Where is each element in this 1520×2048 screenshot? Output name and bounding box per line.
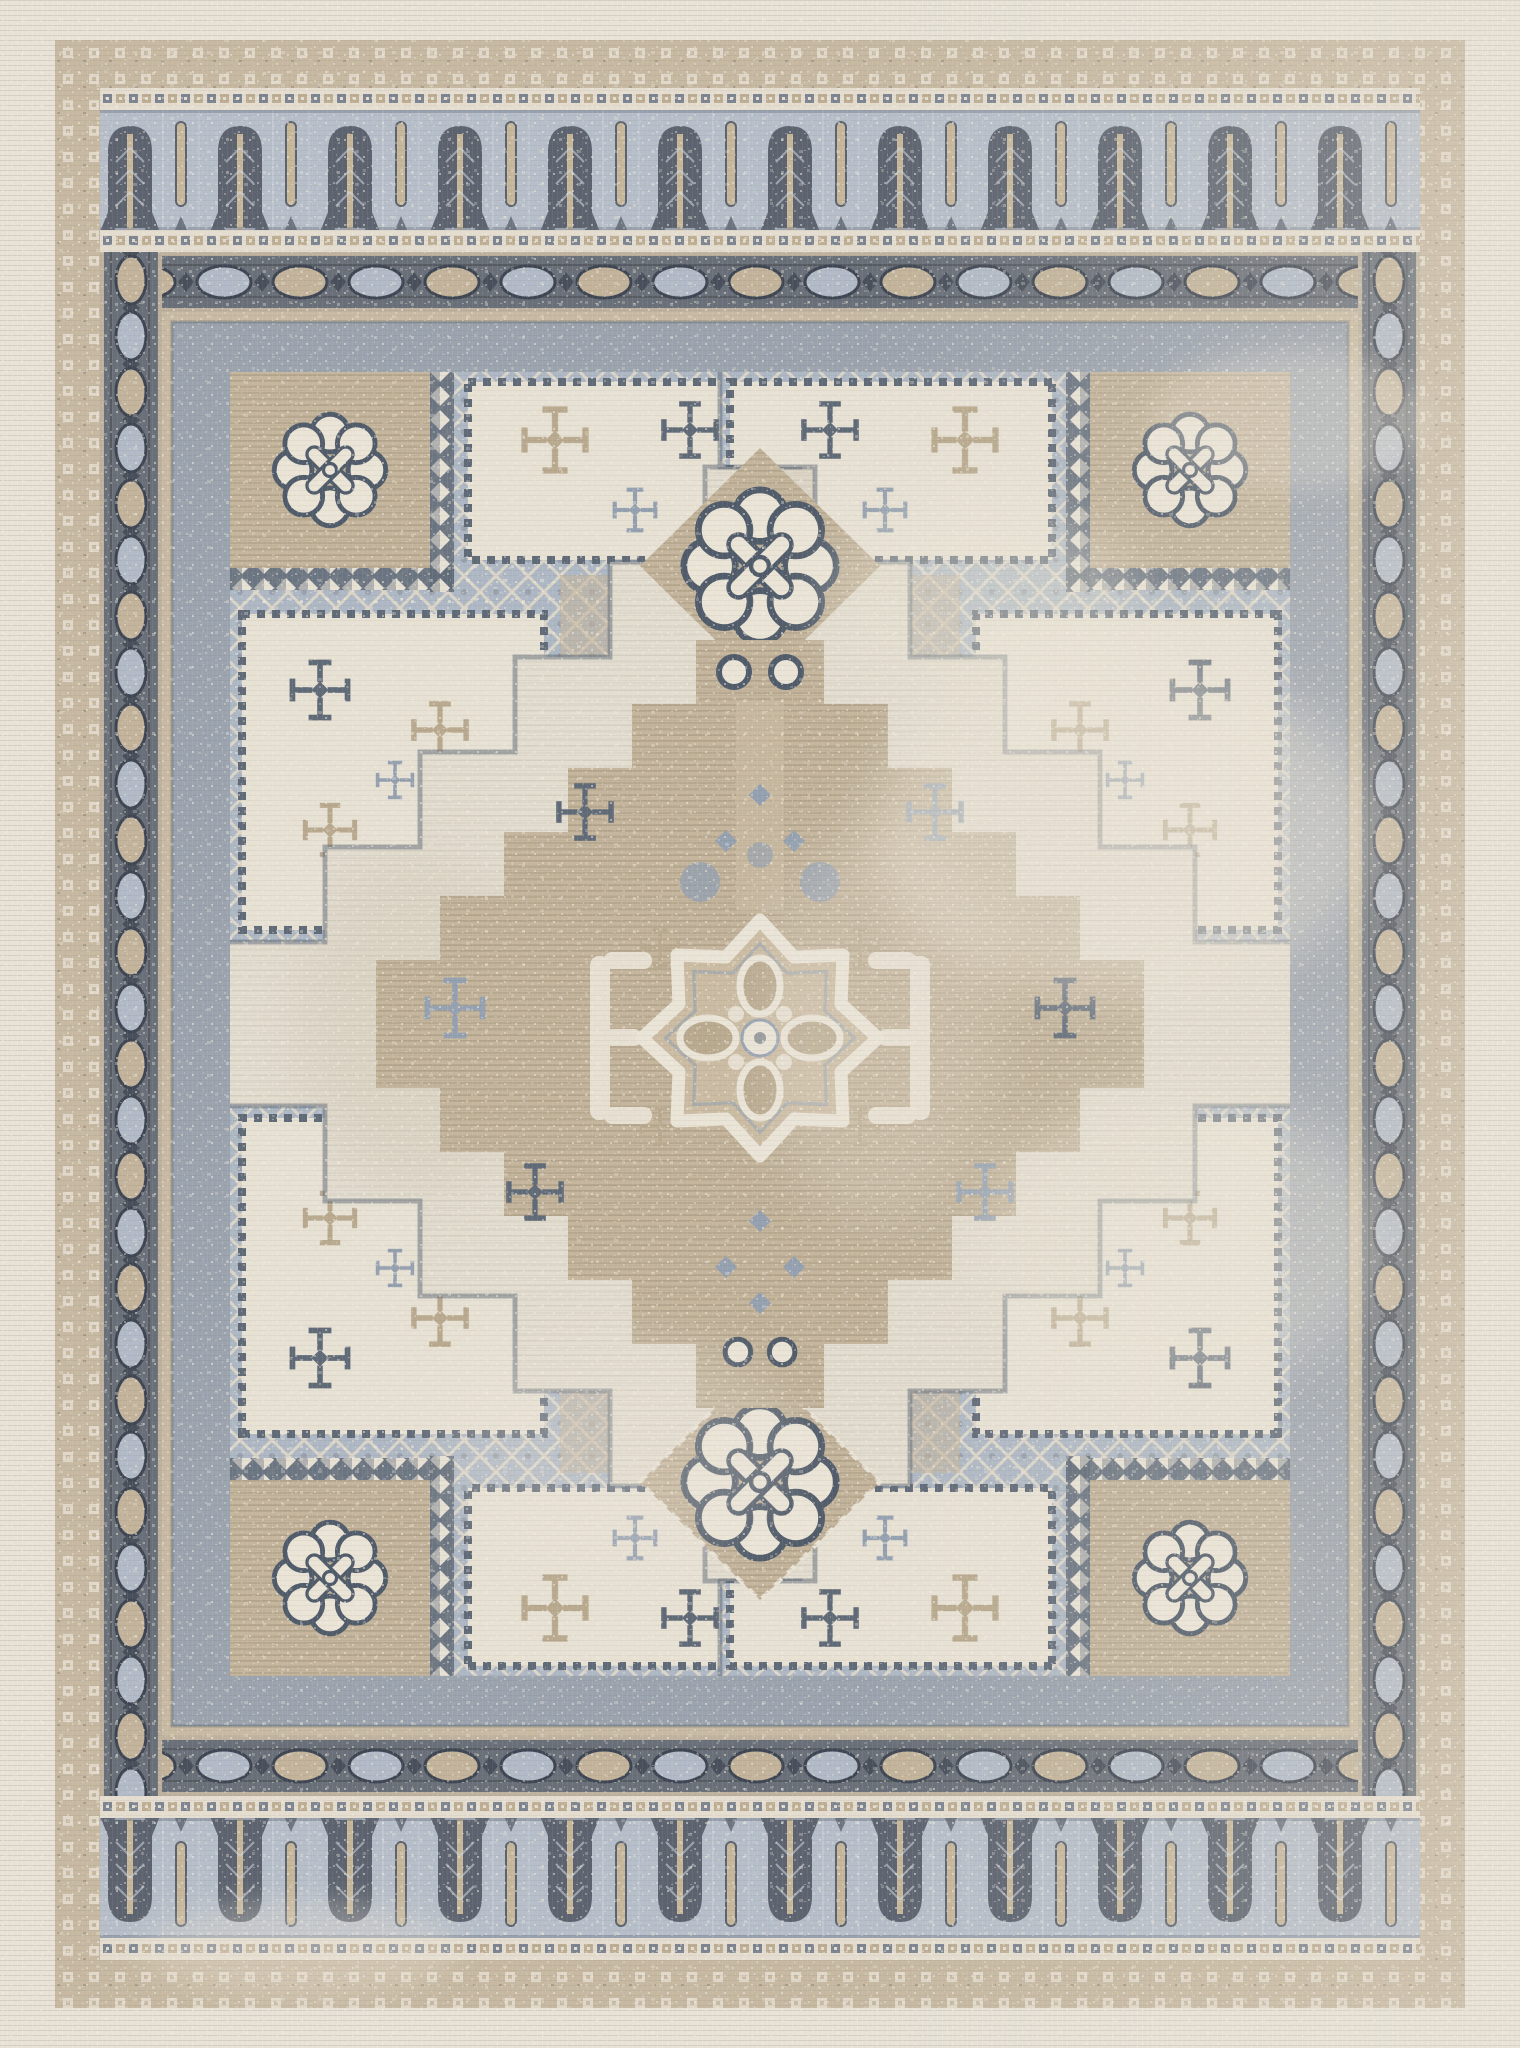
rug-product-photo: Vintage-style distressed area rug, portr… <box>0 0 1520 2048</box>
area-rug-image <box>0 0 1520 2048</box>
distress-overlay <box>0 0 1520 2048</box>
